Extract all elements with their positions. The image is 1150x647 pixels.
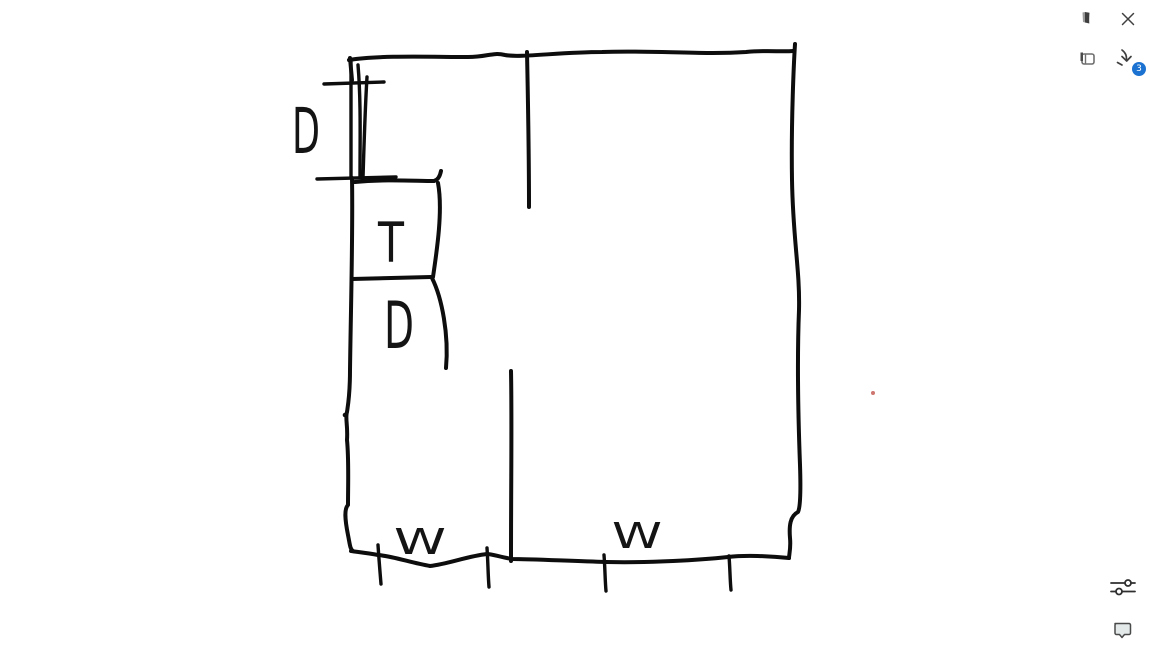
interior-wall-top [527, 52, 529, 207]
notebook-icon[interactable] [1076, 48, 1098, 70]
bottom-tick-1 [378, 545, 381, 584]
t-room-right-lower [432, 278, 447, 368]
notebook-glyph [1076, 48, 1098, 70]
wall-left [345, 178, 353, 551]
bottom-tick-3 [604, 555, 606, 591]
inbox-badge: 3 [1132, 62, 1146, 76]
journal-page-icon[interactable] [1076, 8, 1096, 28]
filter-sliders-glyph [1109, 577, 1137, 597]
door-stroke-3 [363, 77, 367, 178]
wall-top [349, 51, 793, 60]
ink-canvas[interactable]: D T D W W [0, 0, 1150, 647]
ink-dot [343, 413, 348, 418]
wall-right [789, 44, 800, 558]
floorplan-sketch: D T D W W [292, 44, 875, 591]
close-icon[interactable] [1119, 10, 1137, 28]
feedback-bubble-icon[interactable] [1111, 619, 1133, 641]
door-tick-top [324, 82, 384, 84]
t-room-divider [352, 277, 431, 279]
close-glyph [1120, 11, 1136, 27]
label-door-top: D [292, 95, 320, 168]
red-speck [871, 391, 875, 395]
app-window: D T D W W 3 [0, 0, 1150, 647]
feedback-bubble-glyph [1111, 619, 1133, 641]
label-door-inner: D [384, 289, 414, 364]
door-stroke-2 [358, 65, 360, 177]
journal-page-glyph [1077, 9, 1095, 27]
label-room-t: T [377, 211, 404, 275]
bottom-tick-2 [487, 548, 489, 587]
inbox-download-icon[interactable]: 3 [1114, 46, 1140, 72]
label-window-right: W [612, 516, 662, 557]
t-room-right-upper [433, 183, 440, 277]
filter-sliders-icon[interactable] [1108, 576, 1138, 598]
bottom-tick-4 [729, 556, 731, 590]
label-window-left: W [394, 522, 446, 563]
